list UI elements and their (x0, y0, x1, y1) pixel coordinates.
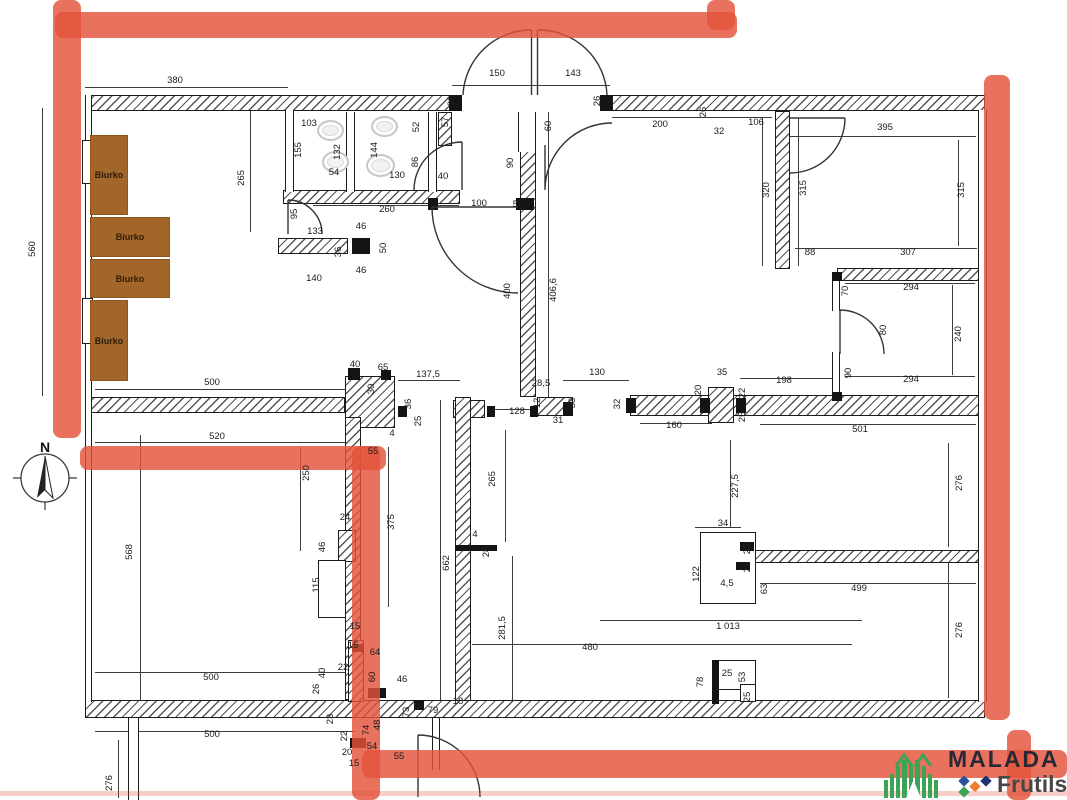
dimension-label: 80 (879, 325, 889, 336)
dimension-label: 26 (312, 684, 322, 695)
dimension-label: 60 (544, 121, 554, 132)
dimension-label: 144 (370, 142, 380, 158)
dimension-label: 500 (204, 730, 220, 740)
dimension-label: 375 (387, 514, 397, 530)
dimension-label: 281,5 (498, 616, 508, 640)
dimension-label: 31 (553, 416, 564, 426)
dimension-label: 63 (760, 584, 770, 595)
dimension-label: 70 (841, 286, 851, 297)
dimension-label: 227,5 (731, 474, 741, 498)
dimension-label: 55 (394, 752, 405, 762)
logo-diamonds-icon (956, 774, 998, 800)
dimension-label: 23 (326, 714, 336, 725)
dimension-label: 265 (488, 471, 498, 487)
dimension-label: 40 (438, 172, 449, 182)
dimension-label: 33 (568, 398, 578, 409)
dimension-label: 25 (414, 416, 424, 427)
logo-building-icon (884, 750, 946, 798)
dimension-label: 95 (290, 209, 300, 220)
dimension-label: 4 (472, 530, 477, 540)
logo-brand-text: MALADA (948, 746, 1060, 773)
dimension-label: 73 (402, 707, 412, 718)
floor-plan-canvas: BiurkoBiurkoBiurkoBiurko N 3801501432626… (0, 0, 1067, 800)
dimension-label: 28 (482, 547, 492, 558)
dimension-label: 265 (237, 170, 247, 186)
dimension-label: 480 (582, 643, 598, 653)
dimension-label: 50 (513, 200, 524, 210)
dimension-label: 24 (340, 513, 351, 523)
dimension-label: 25 (738, 412, 748, 423)
dimension-label: 250 (302, 465, 312, 481)
dimension-label: 46 (356, 266, 367, 276)
dimension-label: 160 (666, 421, 682, 431)
dimension-label: 64 (370, 648, 381, 658)
dimension-label: 103 (301, 119, 317, 129)
dimension-label: 20 (342, 748, 353, 758)
dimension-label: 26 (593, 96, 603, 107)
dimension-label: 276 (105, 775, 115, 791)
dimension-label: 22 (340, 731, 350, 742)
dimension-label: 86 (411, 157, 421, 168)
dimension-label: 4,5 (720, 579, 733, 589)
dimension-label: 60 (368, 672, 378, 683)
dimension-label: 46 (397, 675, 408, 685)
dimension-label: 53 (738, 672, 748, 683)
dimension-label: 15 (348, 641, 359, 651)
dimension-label: 40 (318, 668, 328, 679)
dimension-label: 133 (307, 227, 323, 237)
dimension-label: 568 (125, 544, 135, 560)
dimension-label: 276 (955, 475, 965, 491)
dimension-label: 520 (209, 432, 225, 442)
dimension-label: 18 (453, 697, 464, 707)
dimension-label: 137,5 (416, 370, 440, 380)
dimension-label: 400 (503, 283, 513, 299)
dimension-label: 143 (565, 69, 581, 79)
dimension-labels-layer: 3801501432626200321062639532031531510315… (0, 0, 1067, 800)
dimension-label: 48 (373, 720, 383, 731)
dimension-label: 315 (799, 180, 809, 196)
dimension-label: 395 (877, 123, 893, 133)
dimension-label: 54 (329, 168, 340, 178)
dimension-label: 90 (844, 368, 854, 379)
dimension-label: 35 (717, 368, 728, 378)
dimension-label: 307 (900, 248, 916, 258)
dimension-label: 115 (312, 577, 322, 592)
dimension-label: 662 (442, 555, 452, 571)
logo: MALADA Frutils (884, 742, 1066, 800)
dimension-label: 140 (306, 274, 322, 284)
dimension-label: 74 (362, 725, 372, 736)
dimension-label: 22 (738, 388, 748, 399)
dimension-label: 54 (367, 742, 378, 752)
dimension-label: 90 (506, 158, 516, 169)
dimension-label: 132 (333, 144, 343, 160)
dimension-label: 30 (367, 384, 377, 395)
dimension-label: 36 (404, 399, 414, 410)
dimension-label: 22 (338, 663, 349, 673)
dimension-label: 560 (28, 241, 38, 257)
logo-sub-text: Frutils (997, 771, 1067, 798)
dimension-label: 130 (389, 171, 405, 181)
dimension-label: 12 (533, 398, 543, 409)
dimension-label: 15 (350, 622, 361, 632)
dimension-label: 25 (722, 669, 733, 679)
dimension-label: 20 (694, 385, 704, 396)
dimension-label: 57 (441, 117, 451, 128)
dimension-label: 122 (692, 566, 702, 582)
dimension-label: 50 (379, 243, 389, 254)
dimension-label: 294 (903, 283, 919, 293)
dimension-label: 55 (368, 447, 379, 457)
dimension-label: 499 (851, 584, 867, 594)
dimension-label: 155 (294, 142, 304, 158)
dimension-label: 240 (954, 326, 964, 342)
dimension-label: 25 (743, 692, 753, 703)
dimension-label: 26 (447, 96, 457, 107)
dimension-label: 260 (379, 205, 395, 215)
dimension-label: 32 (613, 399, 623, 410)
dimension-label: 200 (652, 120, 668, 130)
dimension-label: 100 (471, 199, 487, 209)
dimension-label: 34 (718, 519, 729, 529)
dimension-label: 315 (957, 182, 967, 198)
dimension-label: 78 (696, 677, 706, 688)
dimension-label: 380 (167, 76, 183, 86)
dimension-label: 28,5 (532, 379, 551, 389)
dimension-label: 52 (412, 122, 422, 133)
dimension-label: 26 (699, 107, 709, 118)
dimension-label: 88 (805, 248, 816, 258)
dimension-label: 500 (204, 378, 220, 388)
dimension-label: 276 (955, 622, 965, 638)
dimension-label: 4 (389, 429, 394, 439)
dimension-label: 130 (589, 368, 605, 378)
dimension-label: 40 (350, 360, 361, 370)
dimension-label: 500 (203, 673, 219, 683)
dimension-label: 36 (334, 247, 344, 258)
dimension-label: 106 (748, 118, 764, 128)
dimension-label: 23 (743, 544, 753, 555)
dimension-label: 25 (743, 562, 753, 573)
dimension-label: 32 (714, 127, 725, 137)
dimension-label: 150 (489, 69, 505, 79)
dimension-label: 46 (356, 222, 367, 232)
dimension-label: 65 (378, 363, 389, 373)
dimension-label: 128 (509, 407, 525, 417)
dimension-label: 406,6 (549, 278, 559, 302)
dimension-label: 501 (852, 425, 868, 435)
dimension-label: 15 (349, 759, 360, 769)
dimension-label: 320 (762, 182, 772, 198)
dimension-label: 198 (776, 376, 792, 386)
dimension-label: 79 (428, 706, 439, 716)
dimension-label: 46 (318, 542, 328, 553)
dimension-label: 1 013 (716, 622, 740, 632)
dimension-label: 294 (903, 375, 919, 385)
